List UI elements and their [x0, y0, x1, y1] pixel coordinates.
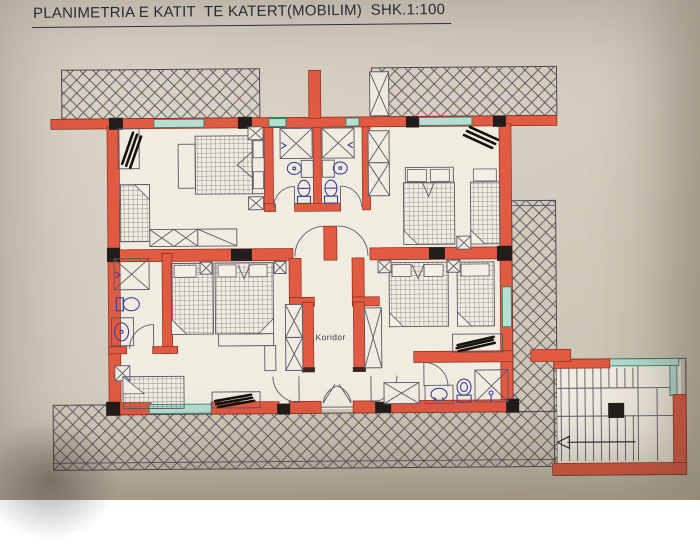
wall-stub-top: [309, 70, 321, 118]
balcony-right: [512, 200, 558, 411]
photo-background: PLANIMETRIA E KATIT TE KATERT(MOBILIM) S…: [0, 0, 700, 500]
balcony-top-left: [62, 69, 260, 120]
single-bed-icon: [123, 376, 184, 408]
arch-center-stub: [324, 226, 337, 260]
nightstand-icon: [457, 236, 471, 249]
page-title: PLANIMETRIA E KATIT TE KATERT(MOBILIM) S…: [32, 1, 451, 28]
balcony-top-right: [371, 66, 556, 116]
single-bed-icon: [457, 262, 495, 326]
floor-plan-svg: Koridor: [0, 0, 700, 503]
stair-window-top: [609, 358, 679, 366]
double-bed-icon: [389, 262, 449, 326]
stair-window-right: [670, 365, 677, 395]
wall: [553, 462, 687, 475]
stair-landing-column: [608, 403, 624, 418]
shaft-columns: [368, 72, 390, 196]
wardrobe-icon: [150, 229, 237, 247]
double-bed-icon: [215, 263, 274, 334]
corridor-label: Koridor: [315, 332, 345, 342]
single-bed-icon: [120, 185, 149, 242]
single-bed-icon: [470, 169, 500, 244]
wardrobe-icon: [384, 382, 419, 403]
